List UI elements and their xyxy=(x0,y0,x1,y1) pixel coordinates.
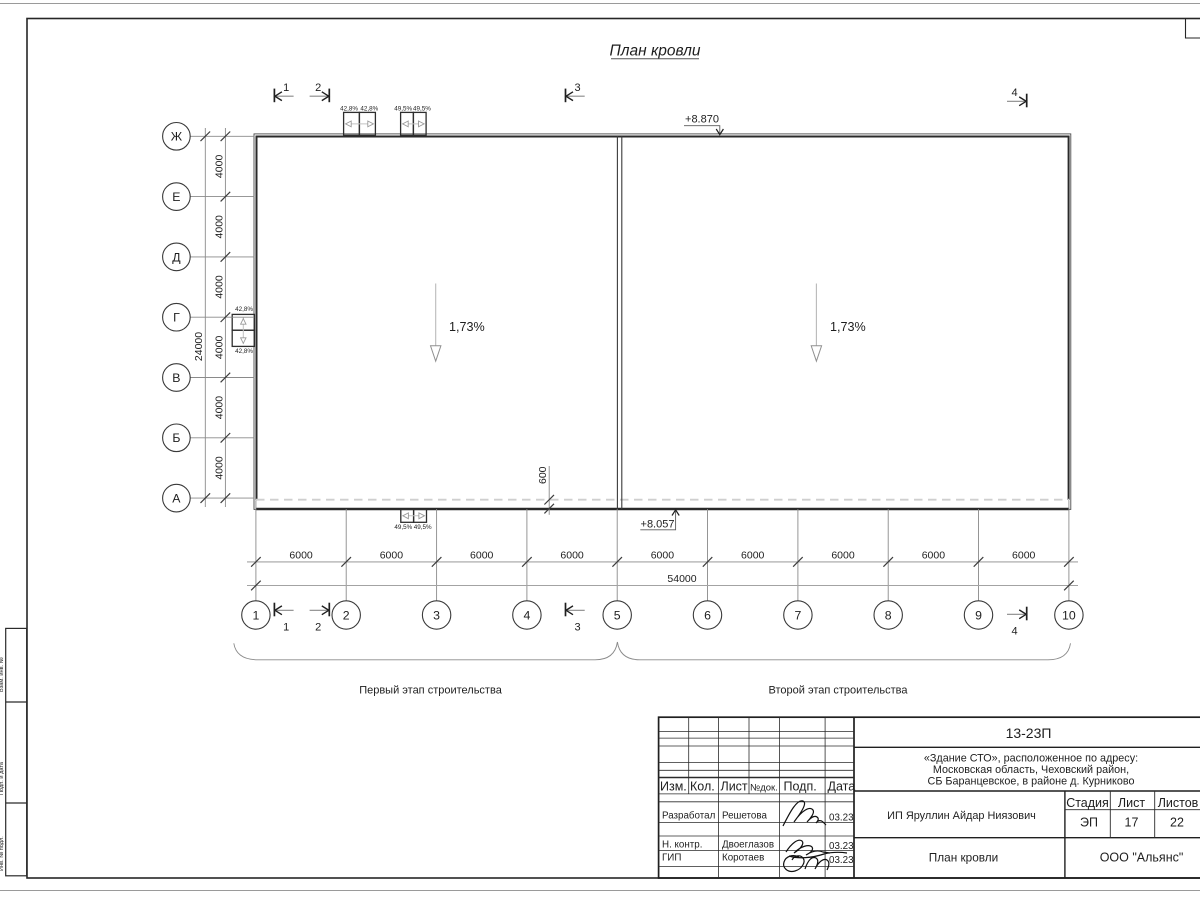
svg-text:6000: 6000 xyxy=(1012,550,1036,562)
svg-text:5: 5 xyxy=(614,608,621,622)
svg-text:4000: 4000 xyxy=(213,155,225,179)
svg-text:СБ Баранцевское, в районе д. К: СБ Баранцевское, в районе д. Курниково xyxy=(928,775,1135,787)
svg-text:03.23: 03.23 xyxy=(829,855,854,866)
svg-text:№док.: №док. xyxy=(750,783,778,794)
svg-text:Лист: Лист xyxy=(721,780,748,794)
svg-text:Лист: Лист xyxy=(1118,796,1145,810)
svg-text:42,8%: 42,8% xyxy=(235,306,253,313)
svg-text:3: 3 xyxy=(574,622,580,634)
svg-text:42,8%: 42,8% xyxy=(360,105,378,112)
svg-text:План кровли: План кровли xyxy=(610,43,701,60)
svg-text:4000: 4000 xyxy=(213,336,225,360)
svg-text:+8.870: +8.870 xyxy=(685,114,719,126)
svg-text:ООО "Альянс": ООО "Альянс" xyxy=(1100,851,1184,865)
svg-text:6000: 6000 xyxy=(831,550,855,562)
svg-text:Решетова: Решетова xyxy=(722,810,767,821)
svg-text:49,5%: 49,5% xyxy=(413,105,431,112)
svg-text:3: 3 xyxy=(574,82,580,94)
svg-text:17: 17 xyxy=(1125,816,1139,830)
svg-text:1: 1 xyxy=(252,608,259,622)
svg-text:Подп.: Подп. xyxy=(784,780,817,794)
svg-text:Ж: Ж xyxy=(171,130,183,144)
svg-text:6000: 6000 xyxy=(741,550,765,562)
svg-text:4: 4 xyxy=(1011,626,1017,638)
svg-text:600: 600 xyxy=(537,466,549,484)
svg-text:Стадия: Стадия xyxy=(1066,796,1109,810)
svg-text:9: 9 xyxy=(975,608,982,622)
svg-text:Московская область, Чеховский: Московская область, Чеховский район, xyxy=(933,764,1129,776)
svg-text:Д: Д xyxy=(172,250,181,264)
svg-text:4000: 4000 xyxy=(213,396,225,420)
svg-text:10: 10 xyxy=(1062,608,1076,622)
svg-text:1: 1 xyxy=(283,82,289,94)
svg-text:03.23: 03.23 xyxy=(829,841,854,852)
svg-text:Второй этап строительства: Второй этап строительства xyxy=(769,685,909,697)
svg-text:3: 3 xyxy=(433,608,440,622)
svg-text:4: 4 xyxy=(523,608,530,622)
svg-text:Кол.: Кол. xyxy=(690,780,715,794)
svg-text:Н. контр.: Н. контр. xyxy=(662,839,702,850)
svg-text:13-23П: 13-23П xyxy=(1006,725,1052,741)
svg-text:2: 2 xyxy=(315,622,321,634)
svg-text:1,73%: 1,73% xyxy=(830,320,866,334)
svg-text:«Здание СТО», расположенное по: «Здание СТО», расположенное по адресу: xyxy=(924,753,1138,765)
svg-text:В: В xyxy=(172,371,180,385)
svg-text:ЭП: ЭП xyxy=(1080,816,1098,830)
svg-text:49,5%: 49,5% xyxy=(394,105,412,112)
svg-text:7: 7 xyxy=(794,608,801,622)
svg-text:4: 4 xyxy=(1011,87,1017,99)
svg-text:6: 6 xyxy=(704,608,711,622)
svg-text:4000: 4000 xyxy=(213,456,225,480)
svg-text:24000: 24000 xyxy=(193,332,205,361)
svg-text:Коротаев: Коротаев xyxy=(722,852,764,863)
svg-text:Е: Е xyxy=(172,190,180,204)
svg-text:Первый этап строительства: Первый этап строительства xyxy=(359,685,503,697)
svg-text:8: 8 xyxy=(885,608,892,622)
svg-text:Двоеглазов: Двоеглазов xyxy=(722,839,774,850)
svg-text:Взам. инв. №: Взам. инв. № xyxy=(0,657,5,692)
svg-text:6000: 6000 xyxy=(380,550,404,562)
svg-text:Подп. и дата: Подп. и дата xyxy=(0,761,5,795)
svg-text:Г: Г xyxy=(173,311,180,325)
svg-text:6000: 6000 xyxy=(651,550,675,562)
svg-text:1,73%: 1,73% xyxy=(449,320,485,334)
svg-text:6000: 6000 xyxy=(922,550,946,562)
svg-text:6000: 6000 xyxy=(470,550,494,562)
svg-text:А: А xyxy=(172,492,181,506)
svg-text:49,5%: 49,5% xyxy=(394,524,412,531)
svg-text:Инв. № подл.: Инв. № подл. xyxy=(0,836,5,871)
svg-text:Разработал: Разработал xyxy=(662,810,716,821)
svg-text:1: 1 xyxy=(283,622,289,634)
svg-text:42,8%: 42,8% xyxy=(235,348,253,355)
svg-text:Дата: Дата xyxy=(828,780,856,794)
svg-text:2: 2 xyxy=(315,82,321,94)
svg-text:Листов: Листов xyxy=(1158,796,1199,810)
svg-text:Б: Б xyxy=(172,431,180,445)
svg-text:03.23: 03.23 xyxy=(829,812,854,823)
svg-text:ГИП: ГИП xyxy=(662,852,681,863)
svg-text:49,5%: 49,5% xyxy=(414,524,432,531)
svg-text:42,8%: 42,8% xyxy=(340,105,358,112)
svg-text:4000: 4000 xyxy=(213,275,225,299)
svg-text:2: 2 xyxy=(343,608,350,622)
svg-text:4000: 4000 xyxy=(213,215,225,239)
svg-text:ИП Яруллин Айдар Ниязович: ИП Яруллин Айдар Ниязович xyxy=(887,810,1036,822)
svg-text:54000: 54000 xyxy=(667,573,696,585)
svg-text:План кровли: План кровли xyxy=(929,851,998,865)
svg-text:+8.057: +8.057 xyxy=(641,519,675,531)
svg-text:Изм.: Изм. xyxy=(660,780,687,794)
svg-text:6000: 6000 xyxy=(289,550,313,562)
svg-text:22: 22 xyxy=(1170,816,1184,830)
svg-text:6000: 6000 xyxy=(560,550,584,562)
